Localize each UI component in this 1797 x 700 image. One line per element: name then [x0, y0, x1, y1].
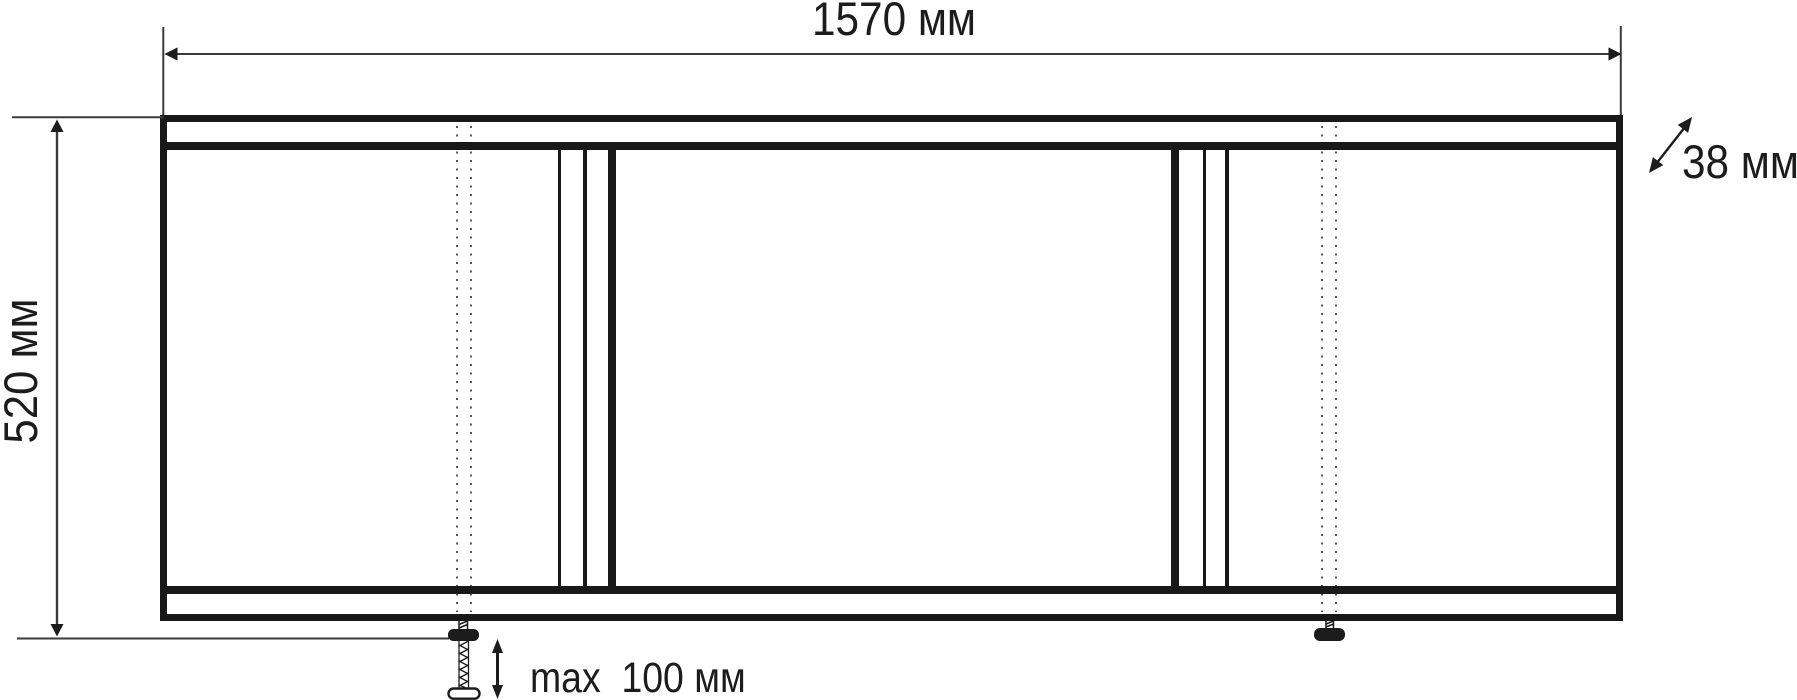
svg-text:38 мм: 38 мм [1682, 137, 1797, 189]
svg-text:1570 мм: 1570 мм [812, 0, 976, 46]
svg-text:520 мм: 520 мм [0, 298, 47, 443]
svg-text:max 100 мм: max 100 мм [530, 654, 746, 700]
